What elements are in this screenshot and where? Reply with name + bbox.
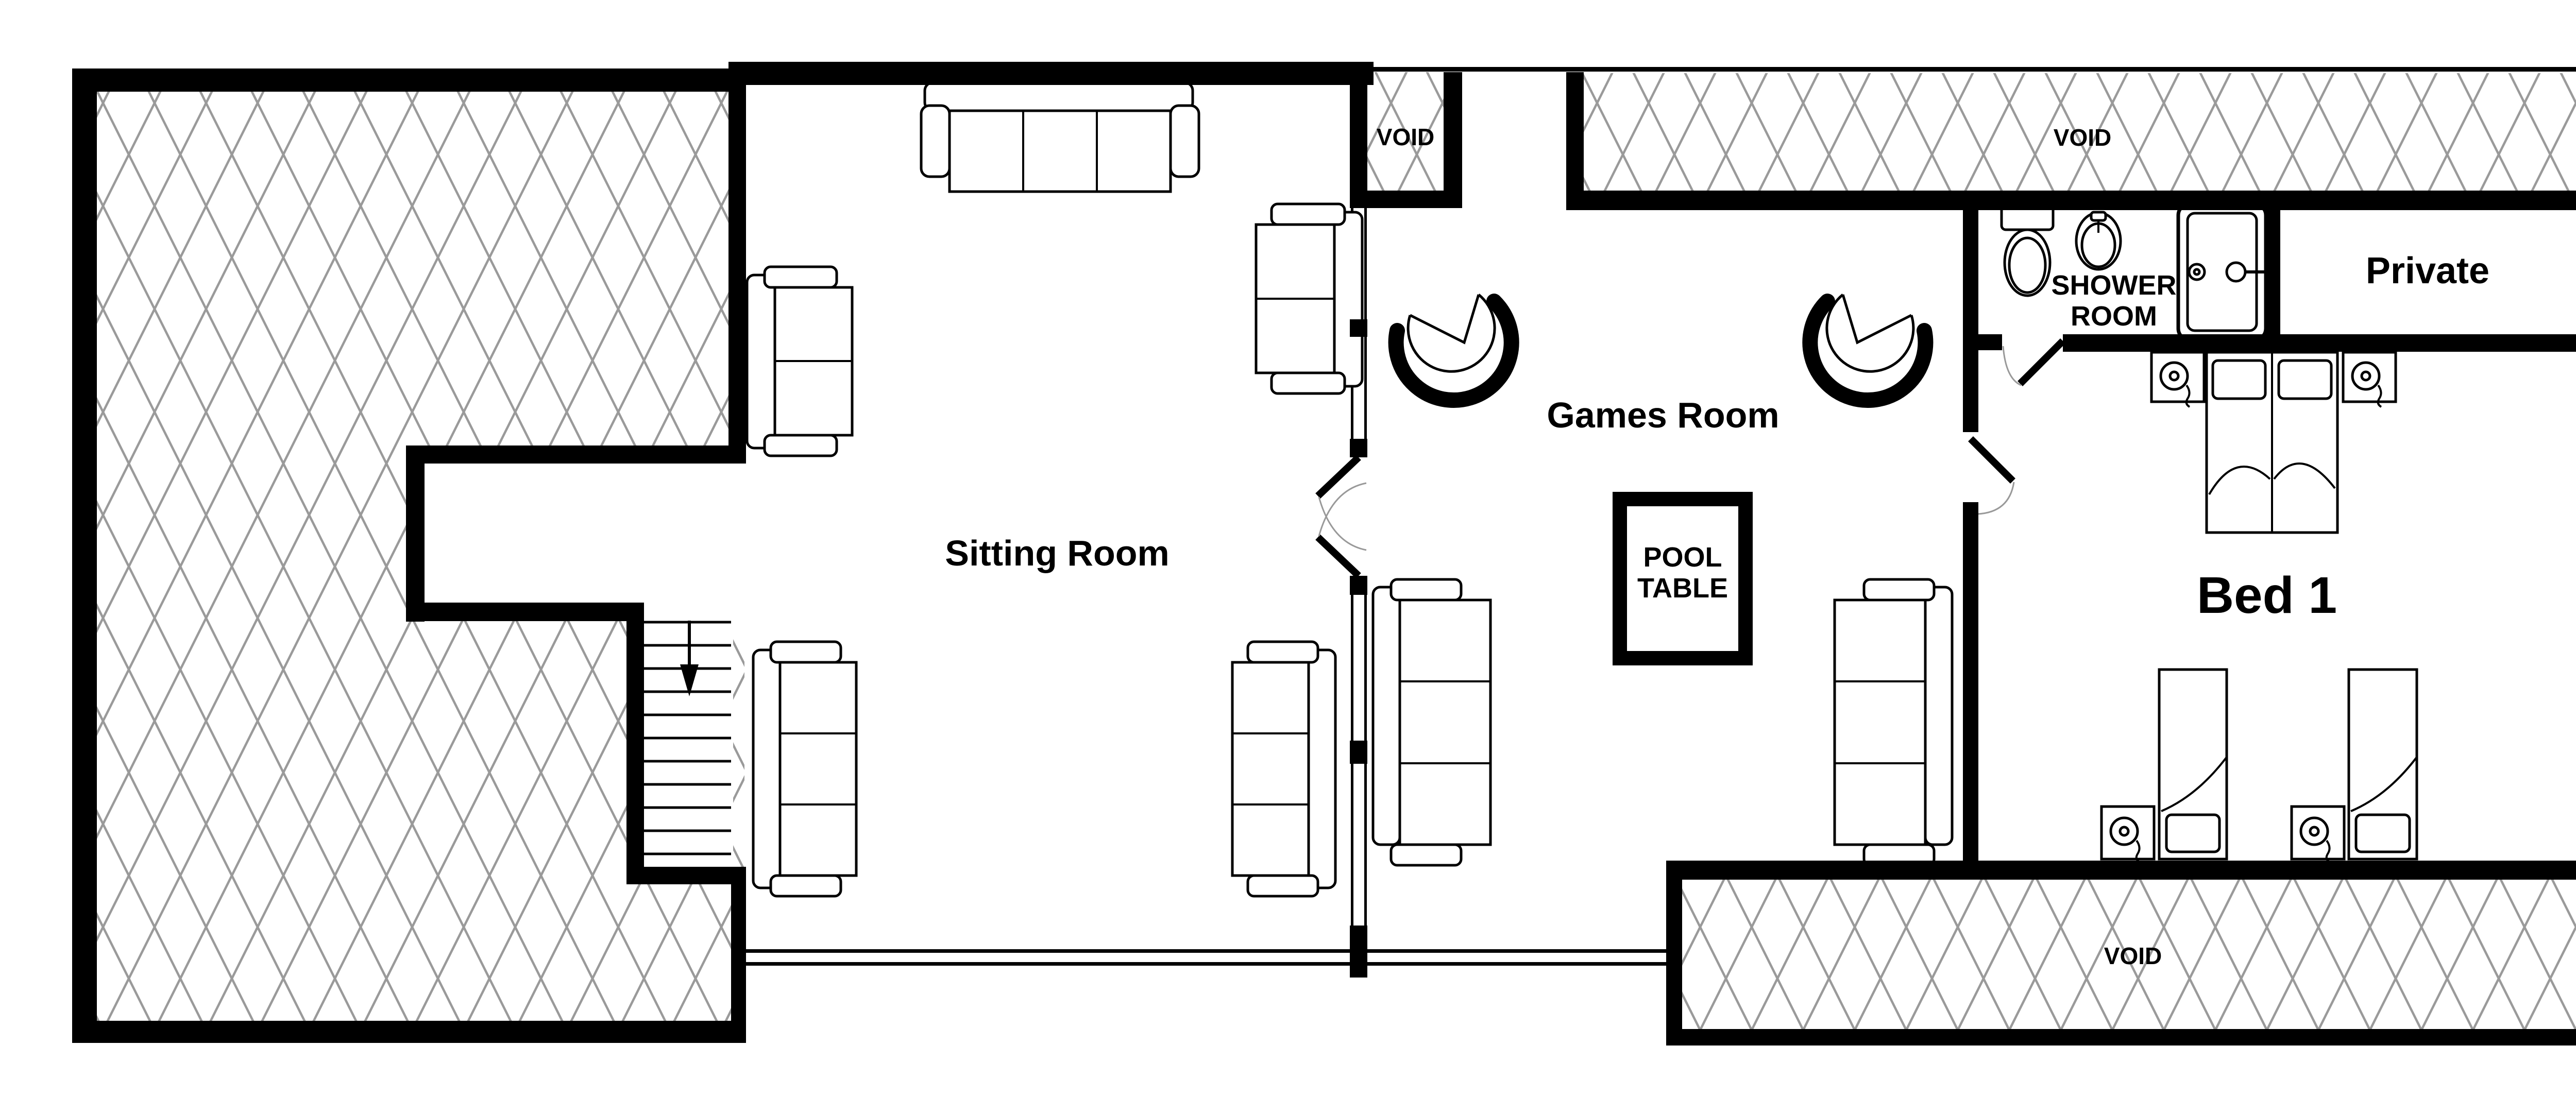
void-label-top: VOID [2054, 124, 2111, 151]
pool-table-label-1: POOL [1643, 542, 1722, 573]
shower-room-label-2: ROOM [2071, 301, 2157, 332]
void-label-bottom: VOID [2104, 942, 2162, 969]
bed1-label: Bed 1 [2197, 567, 2337, 624]
games-room-label: Games Room [1547, 395, 1779, 435]
sofa-2seat-right [1256, 204, 1362, 393]
double-bed [2207, 352, 2337, 533]
private-label: Private [2366, 250, 2489, 292]
void-label-mid: VOID [1377, 124, 1434, 150]
pool-table: POOL TABLE [1613, 492, 1753, 665]
single-bed-left [2159, 670, 2227, 859]
nightstand-lamp-top-left [2151, 352, 2204, 407]
floor-plan-canvas: POOL TABLE [0, 0, 2576, 1114]
floor-plan: POOL TABLE [0, 0, 2576, 1114]
sofa-3seat-games-right [1835, 579, 1952, 865]
toilet [2002, 206, 2053, 296]
nightstand-lamp-bottom-left [2102, 807, 2154, 862]
sofa-3seat-top [921, 82, 1199, 192]
sink [2076, 212, 2121, 269]
sitting-room-label: Sitting Room [945, 533, 1169, 573]
sofa-3seat-bottom-middle [1232, 642, 1335, 896]
nightstand-lamp-top-right [2343, 352, 2396, 407]
pool-table-label-2: TABLE [1637, 573, 1728, 604]
sofa-3seat-bottom-left [753, 642, 856, 896]
shower-enclosure [2178, 204, 2266, 340]
shower-room-label-1: SHOWER [2052, 270, 2177, 301]
single-bed-right [2349, 670, 2417, 859]
sofa-2seat-left [747, 267, 852, 456]
nightstand-lamp-bottom-right [2292, 807, 2344, 862]
sofa-3seat-games-left [1373, 579, 1490, 865]
